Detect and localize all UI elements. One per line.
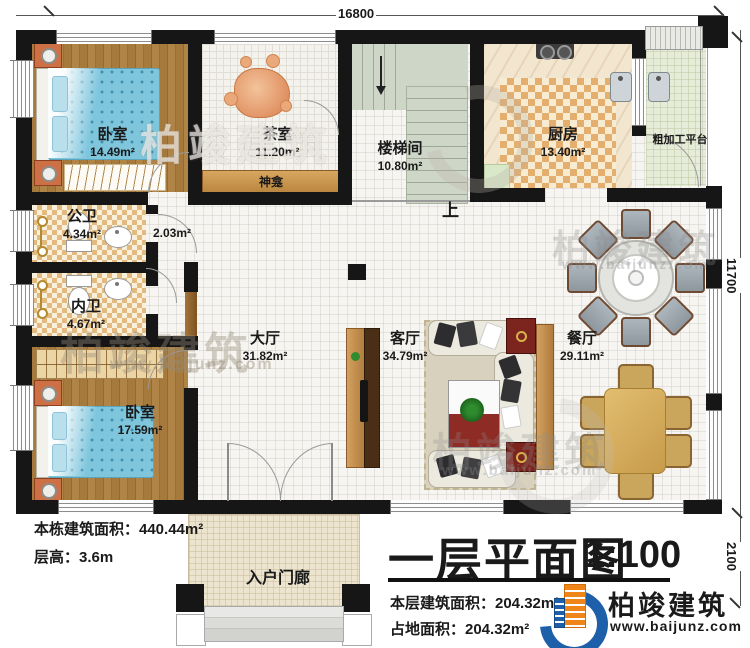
logo-building-blue (554, 598, 565, 628)
note-floor-area: 本层建筑面积：204.32m² (390, 592, 559, 613)
dining-chair (662, 434, 692, 468)
wall (184, 336, 198, 350)
wall (146, 205, 158, 214)
room-label-hall: 大厅 31.82m² (220, 330, 310, 364)
window (706, 410, 722, 500)
wall (146, 314, 158, 336)
door-leaf (185, 292, 197, 336)
room-label-tearoom: 茶室 11.20m² (235, 126, 320, 160)
kitchen-sink (610, 72, 632, 102)
porch-pillar-base (342, 614, 372, 646)
porch-door-leaf (227, 443, 229, 501)
pillow (52, 116, 68, 152)
shrine-cabinet: 神龛 (202, 170, 340, 194)
floor-porch (188, 514, 360, 608)
window (390, 500, 504, 514)
pillow (52, 444, 67, 472)
room-label-public-bath: 公卫 4.34m² (46, 208, 118, 242)
room-label-bedroom-1: 卧室 14.49m² (70, 126, 155, 160)
brand-logo (538, 582, 610, 646)
dimension-tick (729, 597, 740, 608)
wall (632, 44, 646, 58)
note-storey-height: 层高：3.6m (34, 546, 113, 567)
room-label-bedroom-2: 卧室 17.59m² (96, 404, 184, 438)
wardrobe (36, 349, 164, 379)
wall (16, 336, 186, 347)
stove (536, 42, 574, 59)
wall (184, 262, 198, 292)
shrine-label: 神龛 (259, 175, 283, 189)
dimension-right: 11700 (722, 258, 741, 293)
stair-up-label: 上 (442, 196, 459, 221)
towel-knob (37, 308, 48, 319)
wall (607, 188, 722, 202)
towel-knob (37, 280, 48, 291)
toilet-tank (66, 275, 92, 287)
window (645, 26, 703, 50)
window (214, 30, 336, 44)
room-label-living: 客厅 34.79m² (365, 330, 445, 364)
nightstand (34, 42, 62, 68)
tearoom-art-dot (280, 100, 292, 112)
tearoom-art-dot (224, 92, 238, 106)
dining-chair (662, 396, 692, 430)
stair-flight-upper (352, 44, 406, 110)
porch-door-leaf (331, 443, 333, 501)
window (10, 60, 34, 118)
nightstand (34, 478, 62, 502)
porch-pillar (176, 584, 204, 612)
tv-plant (351, 352, 360, 361)
dining-chair (675, 263, 705, 293)
plan-scale: 1:100 (584, 534, 681, 577)
porch-steps (204, 606, 344, 642)
window (56, 30, 152, 44)
logo-building-orange (564, 584, 586, 628)
pillow (52, 76, 68, 112)
sofa-cushion (500, 379, 522, 404)
platform-edge (700, 44, 708, 186)
window (632, 58, 646, 126)
room-label-private-bath: 内卫 4.67m² (50, 298, 122, 332)
wall (184, 388, 198, 500)
room-label-dining: 餐厅 29.11m² (542, 330, 622, 364)
tearoom-art-dot (240, 56, 252, 68)
note-building-area: 本栋建筑面积：440.44m² (34, 518, 203, 539)
corridor-area-label: 2.03m² (144, 226, 200, 240)
brand-url: www.baijunz.com (610, 618, 742, 634)
title-underline (388, 578, 670, 582)
bath-sink (104, 278, 132, 300)
window (10, 210, 34, 252)
toilet-tank (66, 240, 92, 252)
floor-plan-canvas: 神龛 (0, 0, 750, 648)
tv (360, 380, 368, 422)
note-site-area: 占地面积：204.32m² (390, 618, 529, 639)
pillow (52, 412, 67, 440)
dining-chair (567, 263, 597, 293)
dimension-corner: 2100 (722, 542, 741, 571)
stair-arrow-head (376, 86, 386, 95)
media-cabinet (506, 318, 536, 354)
nightstand (34, 160, 62, 186)
nightstand (34, 380, 62, 406)
porch-pillar-base (176, 614, 206, 646)
stair-arrow-line (380, 56, 382, 88)
dimension-top: 16800 (336, 6, 376, 21)
tearoom-art-dot (266, 54, 280, 68)
hall-pillar (348, 264, 366, 280)
wall (188, 192, 352, 205)
platform-sink (648, 72, 670, 102)
window (706, 288, 722, 394)
window (706, 208, 722, 260)
room-label-platform: 粗加工平台 (640, 134, 720, 148)
dining-chair (621, 317, 651, 347)
wall (188, 44, 202, 205)
sofa-cushion (456, 321, 478, 348)
dining-chair (618, 470, 654, 500)
window (10, 385, 34, 451)
sofa-cushion (460, 457, 481, 480)
window (58, 500, 154, 514)
room-label-porch: 入户门廊 (228, 564, 328, 588)
porch-pillar (342, 584, 370, 612)
wall (16, 262, 146, 273)
towel-knob (37, 246, 48, 257)
dining-chair (621, 209, 651, 239)
wall (16, 192, 148, 205)
window (10, 284, 34, 326)
round-table-center (628, 270, 644, 286)
coffee-table-plant (460, 398, 484, 422)
